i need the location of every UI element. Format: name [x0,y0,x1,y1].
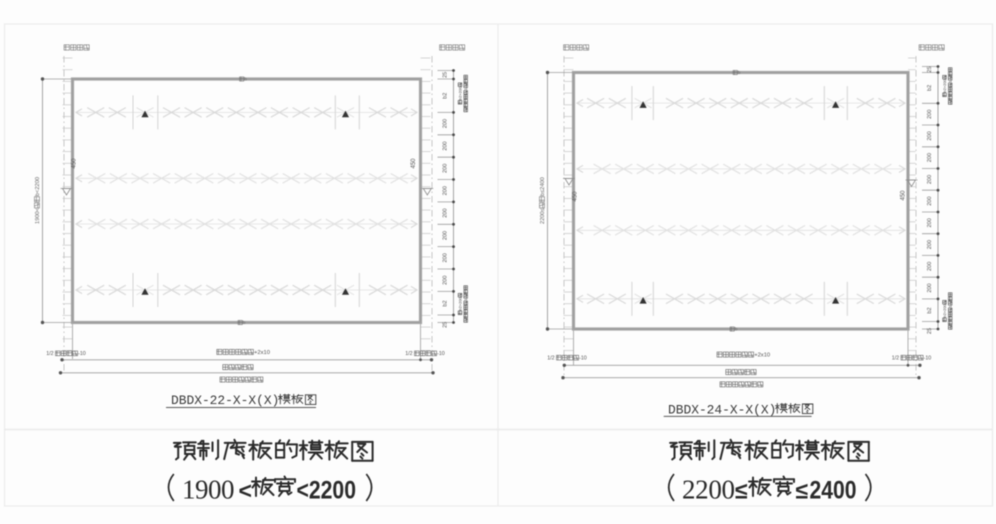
svg-text:≤: ≤ [796,478,809,504]
svg-text:<2200: <2200 [297,477,357,505]
svg-text:2400: 2400 [810,477,857,505]
svg-text:1900: 1900 [182,475,235,505]
svg-text:≤: ≤ [735,478,748,504]
svg-text:<: < [239,478,252,504]
svg-text:2200: 2200 [682,475,735,505]
